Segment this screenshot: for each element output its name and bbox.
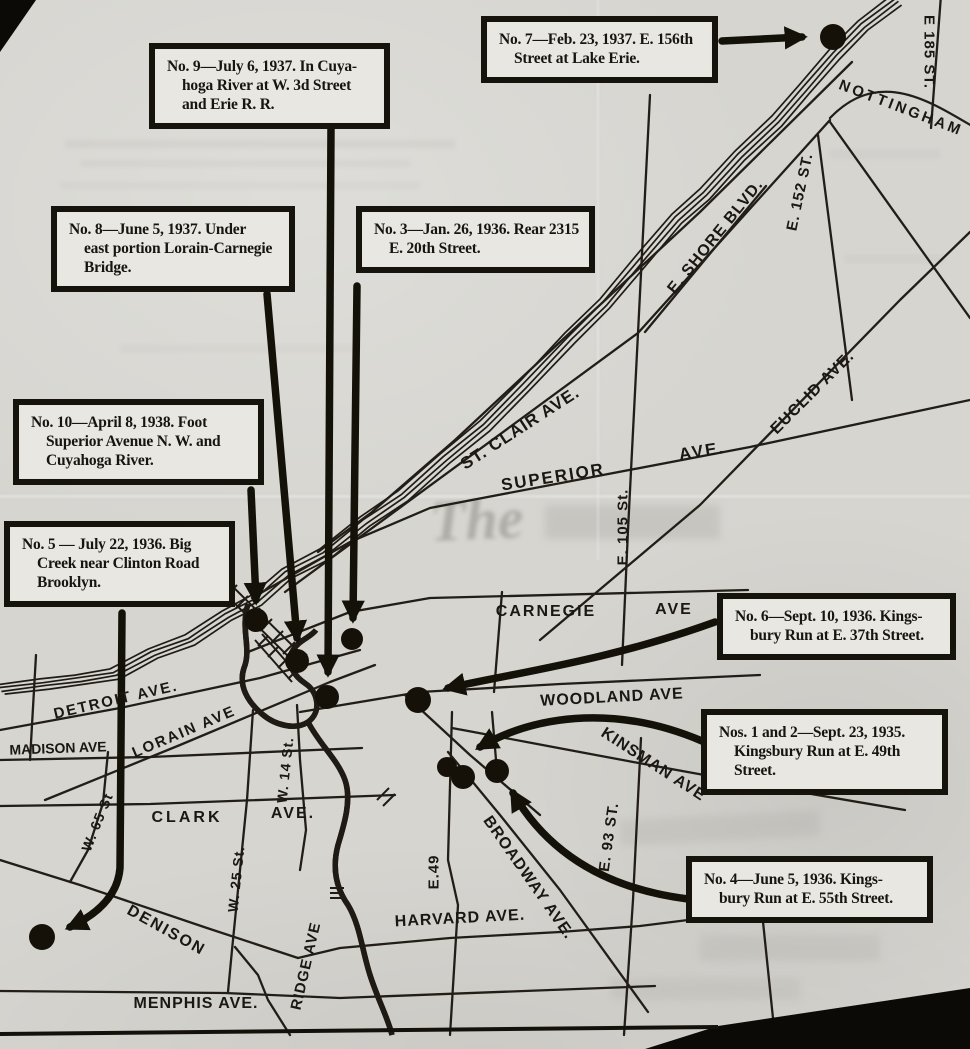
road-woodland [300, 675, 760, 712]
callout-no-9-line: No. 9—July 6, 1937. In Cuya- [167, 57, 376, 76]
callout-nos-1-and-2: Nos. 1 and 2—Sept. 23, 1935.Kingsbury Ru… [701, 709, 948, 795]
callout-no-6-line: bury Run at E. 37th Street. [750, 626, 942, 645]
callout-no-8-line: east portion Lorain-Carnegie [84, 239, 281, 258]
road-e105 [622, 95, 650, 665]
street-label-ave: AVE [655, 602, 693, 618]
arrow-no-9 [328, 127, 331, 672]
callout-no-10-line: Superior Avenue N. W. and [46, 432, 250, 451]
map-photo: The [0, 0, 970, 1049]
street-label-e-49: E.49 [427, 855, 442, 890]
callout-no-10-line: No. 10—April 8, 1938. Foot [31, 413, 250, 432]
callout-no-7-line: No. 7—Feb. 23, 1937. E. 156th [499, 30, 704, 49]
dot-no-2 [451, 765, 475, 789]
dot-no-3 [341, 628, 363, 650]
callout-no-7-line: Street at Lake Erie. [514, 49, 704, 68]
road-ridge [235, 947, 290, 1035]
road-w14 [297, 705, 306, 870]
callout-no-4-line: bury Run at E. 55th Street. [719, 889, 919, 908]
callout-nos-1-and-2-line: Nos. 1 and 2—Sept. 23, 1935. [719, 723, 934, 742]
callout-no-4-line: No. 4—June 5, 1936. Kings- [704, 870, 919, 889]
callout-no-5-line: Creek near Clinton Road [37, 554, 221, 573]
road-ne-diагonal [830, 122, 970, 318]
street-label-clark: CLARK [152, 810, 223, 826]
callout-no-3-line: No. 3—Jan. 26, 1936. Rear 2315 [374, 220, 581, 239]
callout-no-3-line: E. 20th Street. [389, 239, 581, 258]
callout-no-9-line: hoga River at W. 3d Street [182, 76, 376, 95]
street-label-e-105-st: E. 105 St. [616, 489, 631, 566]
road-harvard-south [762, 912, 774, 1028]
dot-no-7 [820, 24, 846, 50]
street-label-ave: AVE. [271, 806, 315, 822]
callout-no-3: No. 3—Jan. 26, 1936. Rear 2315E. 20th St… [356, 206, 595, 273]
callout-no-5-line: No. 5 — July 22, 1936. Big [22, 535, 221, 554]
street-label-carnegie: CARNEGIE [496, 604, 596, 620]
arrow-no-10 [251, 490, 256, 600]
dot-no-6 [405, 687, 431, 713]
callout-no-8-line: Bridge. [84, 258, 281, 277]
dot-no-10 [244, 608, 268, 632]
callout-nos-1-and-2-line: Kingsbury Run at E. 49th [734, 742, 934, 761]
arrow-nos-1-2 [480, 718, 702, 747]
callout-no-8-line: No. 8—June 5, 1937. Under [69, 220, 281, 239]
arrow-no-7 [722, 37, 802, 41]
callout-no-5: No. 5 — July 22, 1936. BigCreek near Cli… [4, 521, 235, 607]
callout-no-9: No. 9—July 6, 1937. In Cuya-hoga River a… [149, 43, 390, 129]
callout-no-6: No. 6—Sept. 10, 1936. Kings-bury Run at … [717, 593, 956, 660]
torn-corner-top-left [0, 0, 36, 52]
street-label-menphis-ave: MENPHIS AVE. [134, 996, 259, 1012]
callout-no-10: No. 10—April 8, 1938. FootSuperior Avenu… [13, 399, 264, 485]
dot-no-5 [29, 924, 55, 950]
callout-no-5-line: Brooklyn. [37, 573, 221, 592]
callout-no-7: No. 7—Feb. 23, 1937. E. 156thStreet at L… [481, 16, 718, 83]
torn-corner-bottom-right [645, 988, 970, 1049]
arrow-no-3 [353, 286, 357, 618]
street-label-e-185-st: E 185 ST. [922, 15, 937, 89]
road-clark [0, 795, 395, 806]
callout-nos-1-and-2-line: Street. [734, 761, 934, 780]
dot-no-8 [285, 649, 309, 673]
cuyahoga-river [242, 604, 392, 1035]
road-superior [252, 400, 970, 598]
callout-no-4: No. 4—June 5, 1936. Kings-bury Run at E.… [686, 856, 933, 923]
callout-no-10-line: Cuyahoga River. [46, 451, 250, 470]
street-label-madison-ave: MADISON AVE [9, 739, 107, 756]
arrow-no-5 [70, 613, 122, 927]
callout-no-6-line: No. 6—Sept. 10, 1936. Kings- [735, 607, 942, 626]
callout-no-8: No. 8—June 5, 1937. Undereast portion Lo… [51, 206, 295, 292]
callout-no-9-line: and Erie R. R. [182, 95, 376, 114]
dot-no-9 [315, 685, 339, 709]
road-menphis [0, 986, 655, 998]
bottom-border-line [0, 1027, 718, 1034]
dot-no-4 [485, 759, 509, 783]
